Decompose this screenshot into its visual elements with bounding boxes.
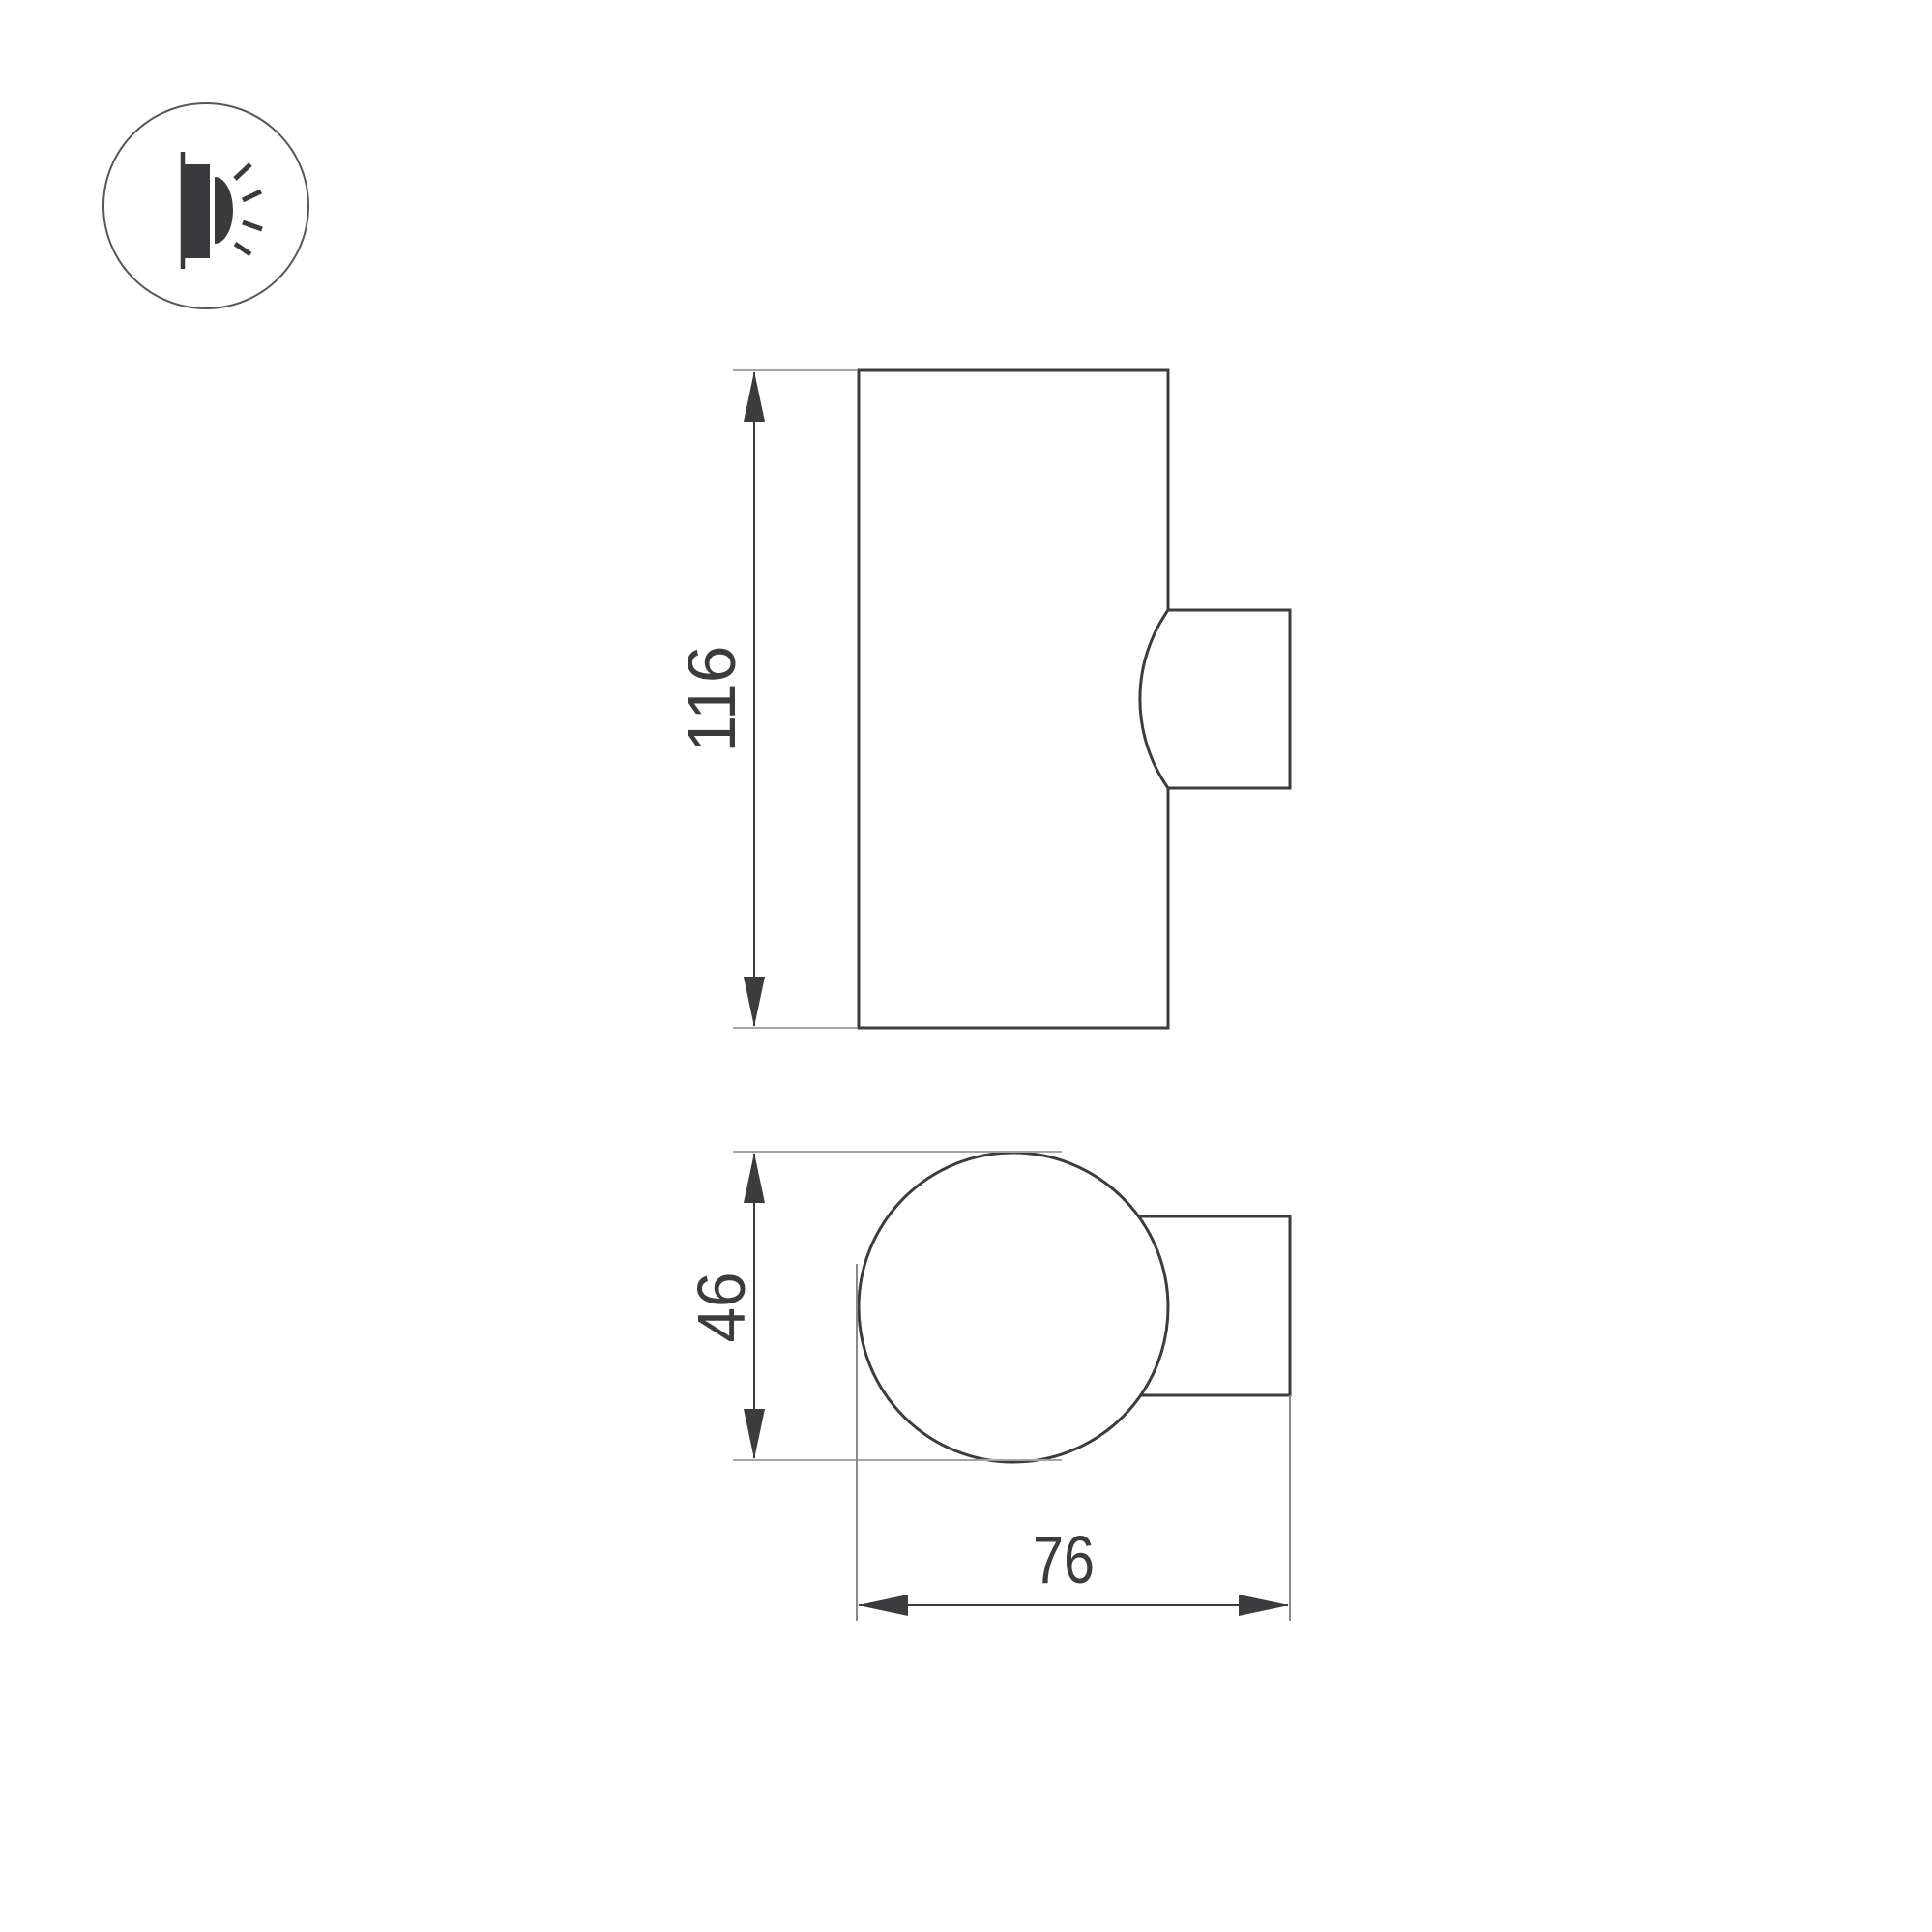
lamp-body-circle — [859, 1153, 1168, 1462]
lamp-body — [184, 164, 210, 258]
depth-value-label: 76 — [1033, 1522, 1095, 1597]
mount-intersection-arc — [1140, 610, 1168, 788]
diameter-value-label: 46 — [684, 1273, 759, 1343]
wall-mount-outline — [1138, 1216, 1290, 1395]
arrow-left-icon — [858, 1595, 908, 1616]
arrow-down-icon — [744, 977, 765, 1027]
front-view — [859, 370, 1290, 1028]
wall-light-badge — [103, 103, 308, 308]
dimension-diameter: 46 — [684, 1152, 1062, 1460]
dimension-depth: 76 — [857, 1264, 1290, 1621]
arrow-up-icon — [744, 371, 765, 422]
wall-mount-outline — [1168, 610, 1290, 788]
top-view — [859, 1153, 1290, 1462]
arrow-down-icon — [744, 1409, 765, 1459]
height-value-label: 116 — [674, 646, 749, 753]
dimension-height: 116 — [674, 370, 857, 1028]
technical-drawing-canvas: 116 46 76 — [0, 0, 1932, 1932]
arrow-up-icon — [744, 1153, 765, 1203]
arrow-right-icon — [1239, 1595, 1289, 1616]
lamp-body-outline — [859, 370, 1168, 1028]
